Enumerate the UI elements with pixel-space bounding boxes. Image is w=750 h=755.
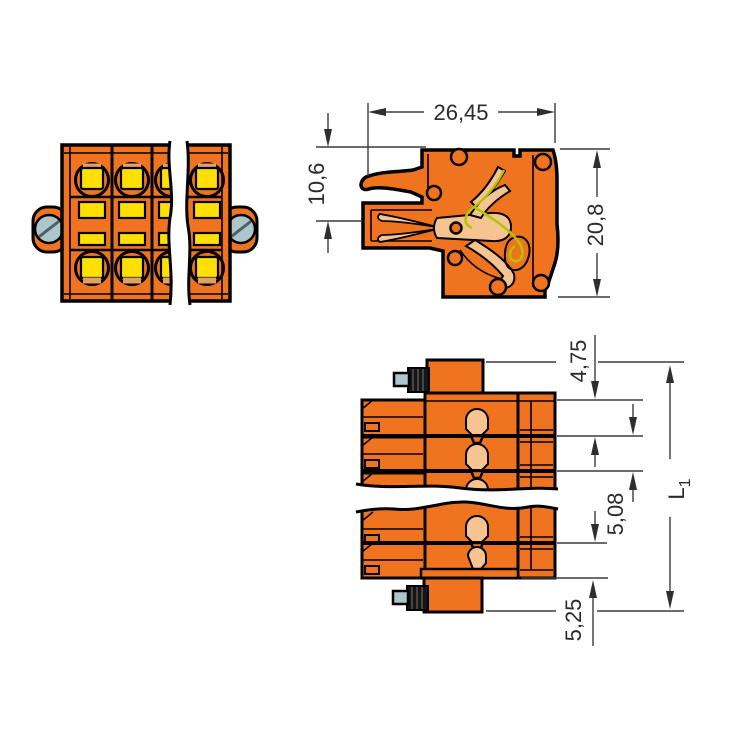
push-button-lower — [79, 233, 105, 245]
screw-anchor-tip-top — [394, 373, 409, 386]
busbar-hole — [451, 223, 462, 234]
wire-entry-top — [121, 168, 143, 189]
arrowhead-down — [666, 591, 674, 609]
keyhole-contact-4 — [466, 516, 488, 542]
busbar-contact — [434, 213, 511, 241]
arrowhead-up — [666, 365, 674, 383]
screw-anchor-tip-bottom — [393, 591, 408, 604]
molding-hole — [535, 154, 551, 170]
contact-strip — [198, 278, 216, 284]
bottom-view — [356, 360, 558, 612]
technical-drawing-page: 26,45 10,6 20,8 4,75 5,08 5,25 — [0, 0, 750, 750]
arrowhead-up — [593, 150, 601, 168]
push-button-upper — [79, 202, 105, 218]
arrowhead-left — [368, 108, 386, 116]
dimension-label-width: 26,45 — [433, 100, 488, 125]
keyhole-latch-1 — [471, 436, 483, 443]
contact-strip — [83, 278, 101, 284]
keyhole-latch-2 — [471, 471, 483, 478]
dimension-label-latch: 10,6 — [304, 163, 329, 206]
molding-hole — [533, 275, 549, 291]
arrowhead-down — [593, 279, 601, 297]
push-button-lower — [194, 233, 220, 245]
molding-hole — [448, 251, 462, 265]
screw-anchor-block-top — [427, 360, 483, 393]
keyhole-contact-5 — [468, 547, 486, 569]
total-length-subscript: 1 — [677, 478, 694, 487]
keyhole-contact-2 — [466, 444, 488, 470]
push-button-upper — [194, 202, 220, 218]
front-view — [33, 141, 257, 305]
arrowhead-down — [591, 524, 599, 542]
arrowhead-up — [324, 221, 332, 239]
molding-hole — [490, 279, 506, 295]
dimension-label-screw-bottom: 5,25 — [561, 599, 586, 642]
dimension-label-pitch: 5,08 — [603, 493, 628, 536]
push-button-lower — [119, 233, 145, 245]
keyhole-contact-1 — [466, 409, 488, 435]
section-view — [361, 149, 558, 297]
arrowhead-down — [591, 381, 599, 399]
push-button-upper — [119, 202, 145, 218]
arrowhead-down — [324, 129, 332, 147]
wire-entry-bottom — [121, 257, 143, 278]
arrowhead-up — [629, 472, 637, 490]
housing-lower-half — [425, 500, 555, 578]
connector-dimension-drawing: 26,45 10,6 20,8 4,75 5,08 5,25 — [0, 0, 750, 750]
arrowhead-down — [629, 417, 637, 435]
molding-hole — [427, 186, 441, 200]
total-length-base: L — [664, 487, 689, 499]
dimension-label-height: 20,8 — [583, 204, 608, 247]
dimension-label-screw-top: 4,75 — [566, 340, 591, 383]
screw-anchor-block-bottom — [424, 578, 482, 612]
arrowhead-up — [591, 437, 599, 455]
wire-entry-bottom — [81, 257, 103, 278]
wire-entry-top — [81, 168, 103, 189]
contact-strip — [123, 278, 141, 284]
arrowhead-up — [589, 580, 597, 598]
arrowhead-right — [537, 108, 555, 116]
wire-entry-top — [196, 168, 218, 189]
dimension-label-total-length: L1 — [664, 478, 694, 499]
wire-entry-bottom — [196, 257, 218, 278]
molding-hole — [451, 149, 467, 165]
